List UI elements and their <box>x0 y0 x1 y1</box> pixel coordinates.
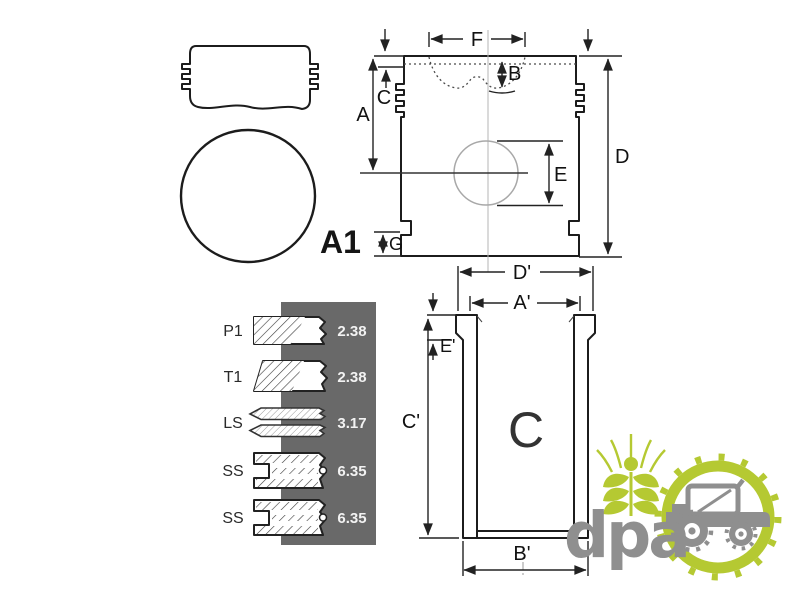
dim-label-g: G <box>389 234 403 254</box>
tractor-exhaust <box>736 480 743 489</box>
dim-label-f: F <box>471 29 483 51</box>
dpa-logo: dpa <box>564 434 778 577</box>
dim-label-e-prime: E' <box>440 336 455 356</box>
ring-label: SS <box>222 463 243 480</box>
ring-value: 2.38 <box>337 323 366 340</box>
piston-crown-label: A1 <box>320 224 361 260</box>
piston-side-view: C A F B E D <box>356 29 629 272</box>
ring-label: SS <box>222 510 243 527</box>
ring-belt-outline <box>182 46 318 109</box>
liner-bore-label: C <box>508 402 544 458</box>
dim-a-prime: A' <box>470 292 580 314</box>
ring-value: 3.17 <box>337 415 366 432</box>
ring-value: 6.35 <box>337 510 366 527</box>
dim-e-prime: E' <box>427 293 456 360</box>
ring-profile-ls-rail-top <box>250 408 325 420</box>
ring-label: LS <box>223 415 243 432</box>
dim-label-a: A <box>356 104 370 126</box>
ring-value: 6.35 <box>337 463 366 480</box>
piston-ring-belt-section <box>182 46 318 109</box>
dim-label-a-prime: A' <box>513 292 530 314</box>
dim-d: D <box>579 29 629 257</box>
ring-label: T1 <box>224 369 243 386</box>
dim-label-b: B <box>508 63 521 85</box>
dim-label-d-prime: D' <box>513 262 531 284</box>
ring-label: P1 <box>223 323 243 340</box>
dpa-logo-text: dpa <box>564 499 688 572</box>
ring-value: 2.38 <box>337 369 366 386</box>
dim-f: F <box>429 29 525 51</box>
dim-label-e: E <box>554 164 567 186</box>
dim-label-c-prime: C' <box>402 411 420 433</box>
ring-size-table: P1 2.38 T1 2.38 LS 3.17 SS 6.35 <box>222 302 376 545</box>
dim-label-d: D <box>615 146 629 168</box>
dim-top-left-arrow <box>374 29 404 67</box>
dim-a: A <box>356 59 373 170</box>
liner-wall-left <box>456 315 477 538</box>
dim-g: G <box>374 232 403 256</box>
piston-crown-circle <box>181 130 315 262</box>
dim-label-b-prime: B' <box>513 543 530 565</box>
dim-label-c: C <box>377 87 391 109</box>
ring-profile-ls-rail-bottom <box>250 425 325 437</box>
dim-c: C <box>377 70 391 109</box>
parts-diagram-canvas: A1 C A F B <box>0 0 800 600</box>
technical-drawing: A1 C A F B <box>0 0 800 600</box>
